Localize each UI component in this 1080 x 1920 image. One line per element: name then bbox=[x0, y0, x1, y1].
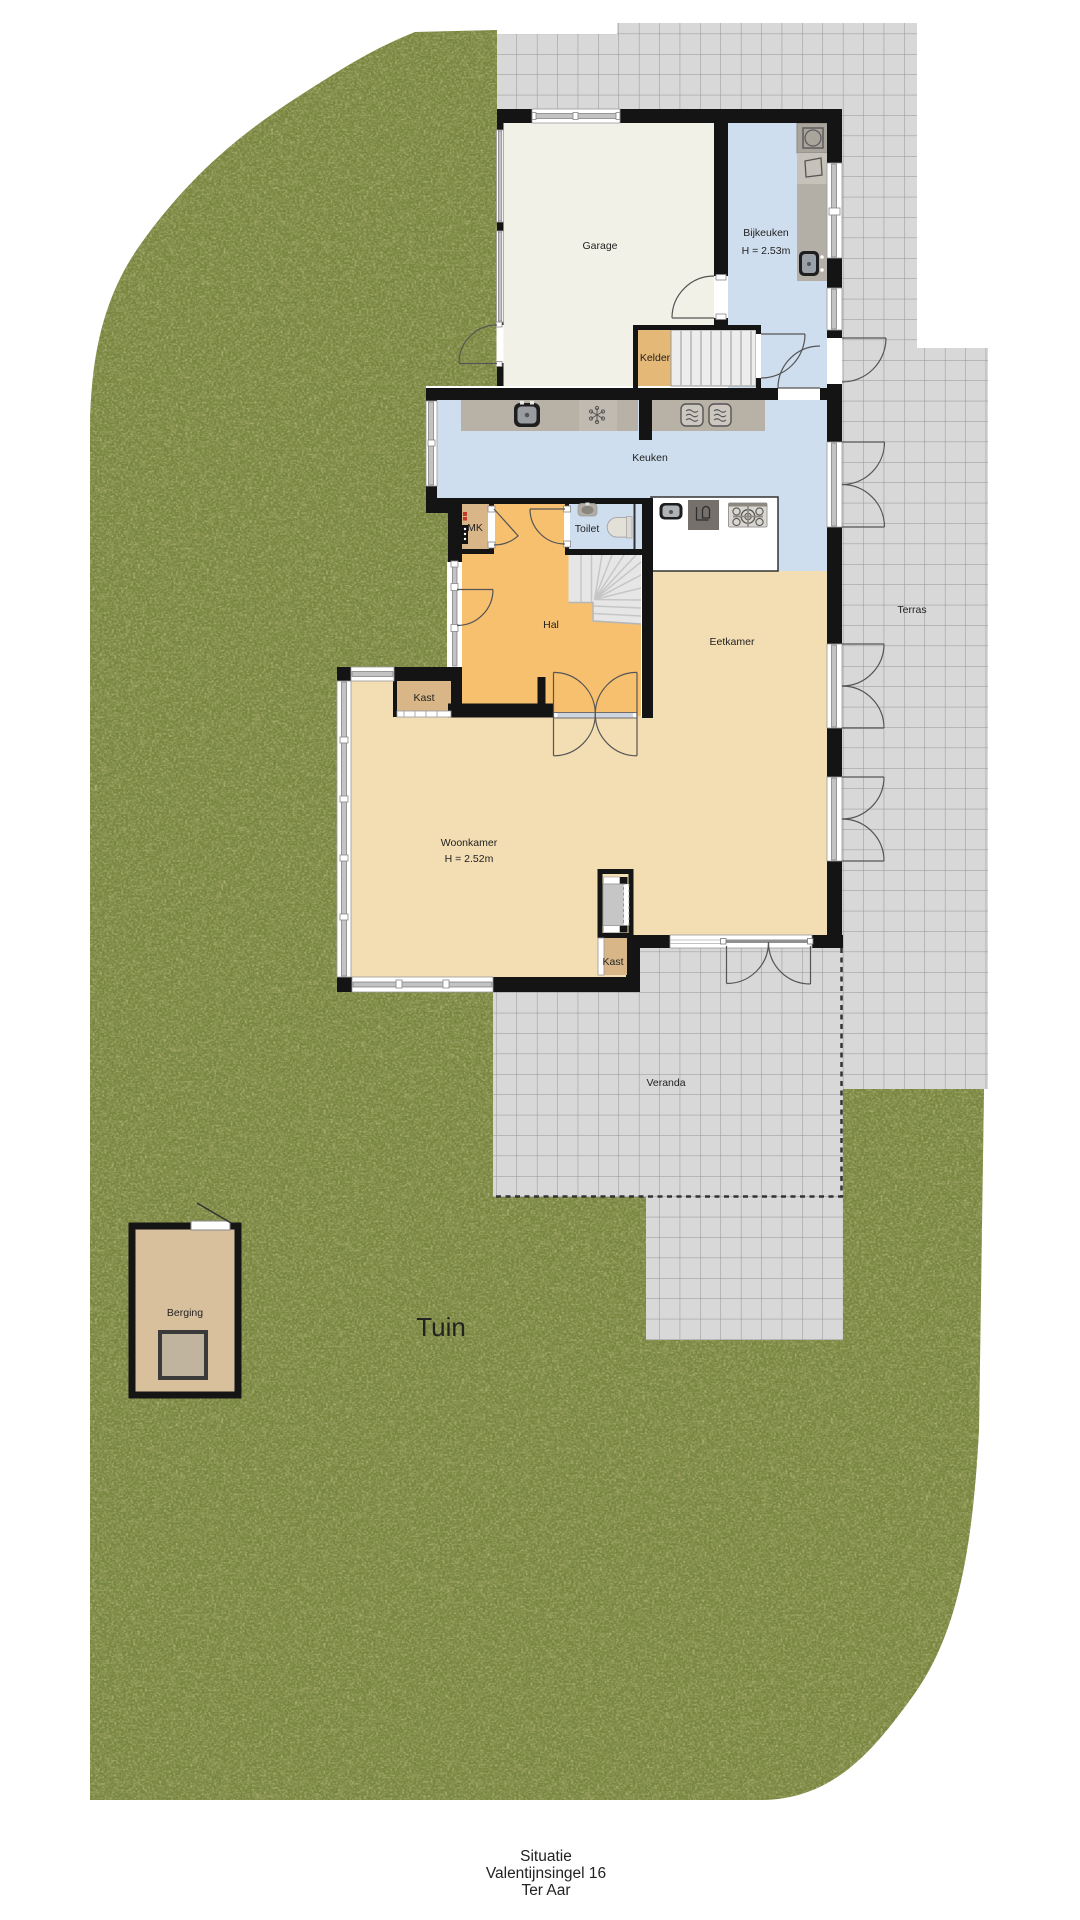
svg-text:Tuin: Tuin bbox=[416, 1312, 466, 1342]
svg-text:Terras: Terras bbox=[897, 604, 926, 616]
svg-text:Valentijnsingel 16: Valentijnsingel 16 bbox=[486, 1865, 606, 1882]
svg-text:Keuken: Keuken bbox=[632, 452, 668, 464]
svg-text:Berging: Berging bbox=[167, 1307, 203, 1319]
svg-text:Toilet: Toilet bbox=[575, 523, 600, 535]
svg-text:Kast: Kast bbox=[413, 692, 434, 704]
svg-text:Kelder: Kelder bbox=[640, 352, 671, 364]
svg-text:Kast: Kast bbox=[602, 956, 623, 968]
svg-text:Hal: Hal bbox=[543, 619, 559, 631]
svg-text:H = 2.52m: H = 2.52m bbox=[445, 853, 494, 865]
svg-text:MK: MK bbox=[467, 522, 483, 534]
svg-text:Garage: Garage bbox=[582, 240, 617, 252]
svg-text:Bijkeuken: Bijkeuken bbox=[743, 227, 789, 239]
svg-text:H = 2.53m: H = 2.53m bbox=[742, 245, 791, 257]
svg-text:Veranda: Veranda bbox=[646, 1077, 685, 1089]
svg-text:Woonkamer: Woonkamer bbox=[441, 837, 498, 849]
svg-text:Eetkamer: Eetkamer bbox=[710, 636, 755, 648]
svg-text:Situatie: Situatie bbox=[520, 1848, 572, 1865]
svg-text:Ter Aar: Ter Aar bbox=[521, 1882, 570, 1899]
